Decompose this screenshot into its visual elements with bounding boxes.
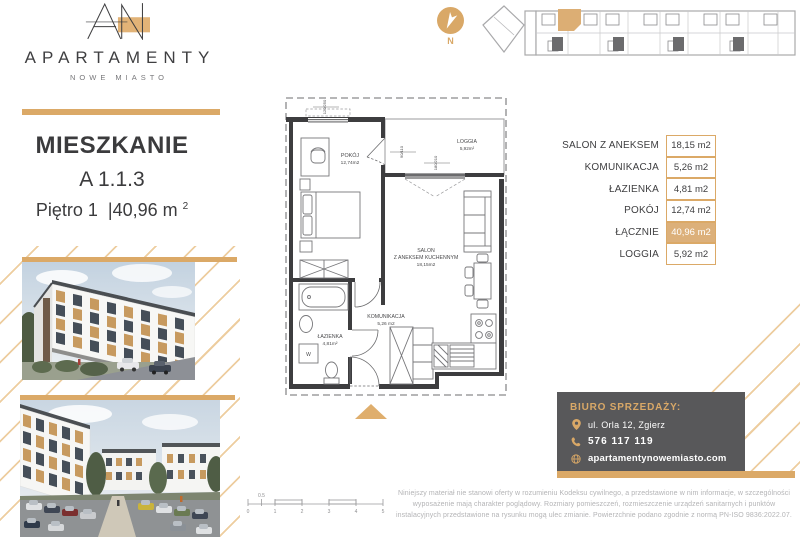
scale-tick: 1 — [274, 509, 277, 515]
legal-disclaimer: Niniejszy materiał nie stanowi oferty w … — [392, 489, 796, 522]
nightstand — [300, 179, 310, 190]
area-exponent: 2 — [183, 201, 189, 212]
table-row-total: ŁĄCZNIE 40,96 m2 — [480, 223, 716, 243]
loggia-label: LOGGIA — [457, 139, 477, 145]
row-value: 5,26 m2 — [666, 157, 716, 179]
row-value: 12,74 m2 — [666, 200, 716, 222]
table-row: SALON Z ANEKSEM 18,15 m2 — [480, 136, 716, 156]
stove — [471, 314, 496, 343]
dim-salon-window: 180/210 — [433, 155, 438, 170]
sales-office-website[interactable]: apartamentynowemiasto.com — [588, 453, 727, 464]
row-label: ŁĄCZNIE — [615, 227, 659, 238]
brand-name: APARTAMENTY — [10, 48, 224, 68]
sales-office-panel: BIURO SPRZEDAŻY: ul. Orla 12, Zgierz 576… — [557, 392, 745, 471]
bathtub — [299, 284, 348, 310]
row-value-total: 40,96 m2 — [666, 222, 716, 244]
komunikacja-area: 5,26 m2 — [377, 321, 395, 327]
floor-label: Piętro 1 — [36, 200, 98, 220]
sink — [300, 316, 313, 333]
dim-loggia-door: 90/110 — [399, 145, 404, 158]
scale-tick: 4 — [355, 509, 358, 515]
lazienka-label: ŁAZIENKA — [317, 334, 343, 340]
salon-label-1: SALON — [417, 248, 435, 254]
location-pin-icon — [570, 419, 582, 430]
washer-label: W — [306, 352, 311, 358]
listing-title-block: MIESZKANIE A 1.1.3 Piętro 1 |40,96 m 2 — [5, 132, 219, 221]
table-row: KOMUNIKACJA 5,26 m2 — [480, 158, 716, 178]
globe-icon — [570, 454, 582, 464]
row-value: 4,81 m2 — [666, 178, 716, 200]
row-label: LOGGIA — [619, 249, 659, 260]
entrance-marker — [355, 404, 387, 419]
brand-subtitle: NOWE MIASTO — [10, 73, 224, 82]
scale-tick: 0.5 — [258, 493, 265, 499]
doors — [350, 138, 385, 386]
sales-office-address: ul. Orla 12, Zgierz — [588, 420, 665, 430]
pokoj-label: POKÓJ — [341, 152, 360, 159]
nightstand — [300, 241, 312, 252]
brand-monogram-icon — [84, 2, 150, 40]
compass-north-label: N — [437, 36, 464, 46]
scale-tick: 2 — [301, 509, 304, 515]
divider-bar — [22, 109, 220, 115]
compass-icon — [437, 7, 464, 34]
table-row: ŁAZIENKA 4,81 m2 — [480, 179, 716, 199]
scale-tick: 5 — [382, 509, 385, 515]
lazienka-area: 4,81m² — [323, 341, 338, 347]
bed — [301, 192, 360, 238]
listing-heading: MIESZKANIE — [5, 132, 219, 160]
kitchen-counter-sink — [432, 343, 496, 369]
sales-office-phone[interactable]: 576 117 119 — [588, 436, 654, 447]
phone-icon — [570, 437, 582, 447]
scale-tick: 0 — [247, 509, 250, 515]
window-salon — [405, 174, 465, 197]
row-value: 18,15 m2 — [666, 135, 716, 157]
sales-office-heading: BIURO SPRZEDAŻY: — [570, 402, 745, 413]
toilet — [324, 362, 339, 384]
building-photo-2 — [20, 400, 220, 537]
window-pokoj — [306, 109, 350, 123]
desk-and-chair — [301, 138, 329, 176]
table-row: POKÓJ 12,74 m2 — [480, 201, 716, 221]
pokoj-area: 12,74m2 — [341, 160, 360, 166]
bottom-accent-bar — [557, 471, 795, 478]
scale-bar: 0 0.5 1 2 3 4 5 — [242, 490, 390, 523]
row-label: KOMUNIKACJA — [585, 162, 659, 173]
cabinet — [413, 328, 433, 379]
row-label: ŁAZIENKA — [609, 184, 659, 195]
salon-area: 18,15m2 — [417, 262, 436, 268]
row-value: 5,92 m2 — [666, 243, 716, 265]
row-label: POKÓJ — [624, 205, 659, 216]
salon-label-2: Z ANEKSEM KUCHENNYM — [394, 255, 459, 261]
table-row: LOGGIA 5,92 m2 — [480, 244, 716, 264]
site-plan — [478, 3, 798, 68]
building-photo-1 — [22, 262, 195, 380]
brand-logo: APARTAMENTY NOWE MIASTO — [10, 2, 224, 82]
area-value: 40,96 m — [113, 200, 178, 220]
flyer-page: APARTAMENTY NOWE MIASTO MIESZKANIE A 1.1… — [0, 0, 800, 537]
wardrobe-komunikacja — [390, 327, 413, 384]
wardrobe-pokoj — [300, 260, 348, 278]
unit-number: A 1.1.3 — [5, 168, 219, 192]
row-label: SALON Z ANEKSEM — [562, 140, 659, 151]
scale-tick: 3 — [328, 509, 331, 515]
floor-and-area: Piętro 1 |40,96 m 2 — [5, 200, 219, 221]
dim-pokoj-window: 120/250 — [322, 99, 327, 114]
area-table: SALON Z ANEKSEM 18,15 m2 KOMUNIKACJA 5,2… — [480, 136, 716, 266]
loggia-area: 5,92m² — [460, 146, 475, 151]
komunikacja-label: KOMUNIKACJA — [367, 314, 405, 320]
